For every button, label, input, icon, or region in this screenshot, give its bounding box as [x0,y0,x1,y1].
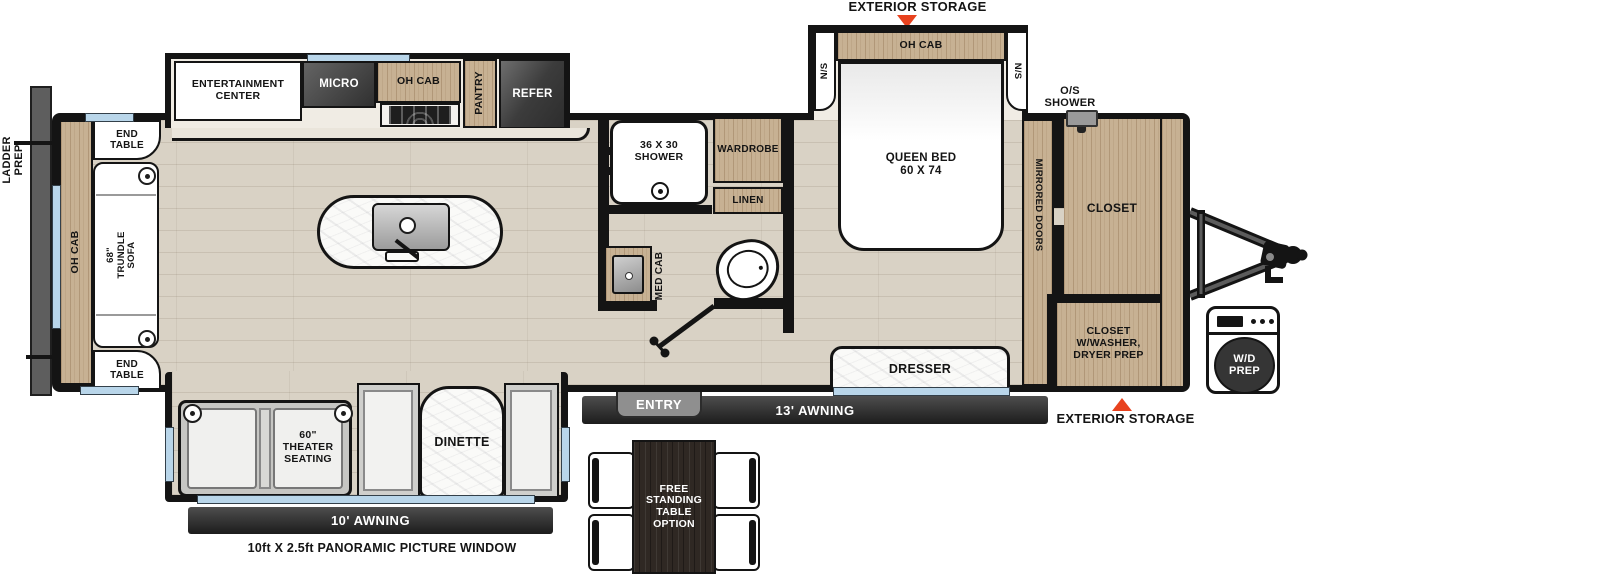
hitch [1190,200,1325,310]
dinette-bench-left-cushion [363,390,413,491]
end-table-bottom [93,350,161,390]
rear-bumper [30,86,52,396]
floorplan-canvas: LADDER PREP EXTERIOR STORAGE ENTERTAINME… [0,0,1600,574]
exterior-storage-front-label: EXTERIOR STORAGE [1048,412,1203,427]
theater-cupholder-left [183,404,202,423]
dresser [830,346,1010,391]
washer-closet [1057,303,1160,386]
shower-wall-bottom [609,205,712,214]
option-chair-2 [588,514,635,571]
ladder-prep-tick-bottom [26,355,52,359]
bedroom-oh-cab [836,31,1006,61]
closet [1064,119,1160,294]
chair-back [592,520,599,565]
bedroom-wall [783,113,794,333]
wd-control-panel [1217,316,1243,327]
wd-panel-line [1209,332,1277,335]
top-left-window [85,113,134,122]
awning-10ft: 10' AWNING [188,507,553,534]
panoramic-window-label: 10ft X 2.5ft PANORAMIC PICTURE WINDOW [232,540,532,556]
theater-cushion-right [273,408,343,489]
chair-back [592,458,599,503]
kitchen-oh-cab [376,61,461,103]
sofa-cupholder-bottom [138,330,156,348]
os-shower-spout [1077,127,1086,133]
shower-valve-top [600,147,610,155]
wardrobe [713,117,783,183]
wd-prep-icon: W/D PREP [1206,306,1280,394]
awning-13ft-label: 13' AWNING [775,403,854,418]
ladder-prep-tick-top [14,141,52,145]
closet-wall-lower [1054,225,1064,295]
wd-drum [1214,337,1275,394]
shower-drain [651,182,669,200]
kitchen-counter [172,128,590,141]
entry-door: ENTRY [616,392,702,418]
end-table-top [93,120,161,160]
rear-slide-window-right [561,427,570,482]
wd-knob-2 [1260,319,1265,324]
washer-closet-wall [1047,294,1057,386]
theater-console [259,408,271,489]
awning-10ft-label: 10' AWNING [331,513,410,528]
cooktop [389,106,451,124]
option-chair-4 [713,514,760,571]
os-shower-label: O/S SHOWER [1030,84,1110,110]
refrigerator [499,59,566,129]
chair-back [749,458,756,503]
chair-back [749,520,756,565]
bedroom-window [833,387,1010,396]
closet-divider-wall [1047,294,1160,303]
trundle-sofa [93,162,159,348]
panoramic-picture-window [197,495,535,504]
sofa-armrest-line-top [96,194,156,196]
shower-valve-bottom [600,167,610,175]
rear-slide-window-left [165,427,174,482]
option-chair-1 [588,452,635,509]
dinette-bench-right-cushion [510,390,552,491]
sofa-armrest-line-bottom [96,314,156,316]
rear-wall-window [52,185,61,329]
rear-oh-cab [59,120,93,385]
bath-door-swing [640,300,730,362]
wd-knob-1 [1251,319,1256,324]
exterior-storage-top-label: EXTERIOR STORAGE [840,0,995,14]
nightstand-left [814,31,836,111]
theater-cupholder-right [334,404,353,423]
sofa-cupholder-top [138,167,156,185]
entertainment-center [174,61,302,121]
entry-label: ENTRY [636,397,682,412]
wd-knob-3 [1269,319,1274,324]
exterior-storage-front-arrow [1112,398,1132,411]
option-chair-3 [713,452,760,509]
front-cabinet-strip [1160,119,1183,386]
sink-drain [399,217,416,234]
bottom-left-window [80,386,139,395]
microwave [302,61,376,108]
toilet-rim [723,246,773,293]
linen [713,187,783,214]
closet-wall-upper [1054,119,1064,208]
os-shower-fixture [1066,110,1098,127]
ladder-prep-label: LADDER PREP [0,115,30,205]
queen-bed [838,61,1004,251]
dinette-table [419,386,505,498]
free-standing-table [632,440,716,574]
vanity-sink-drain [625,272,633,280]
nightstand-right [1006,31,1028,111]
pantry [463,59,497,128]
